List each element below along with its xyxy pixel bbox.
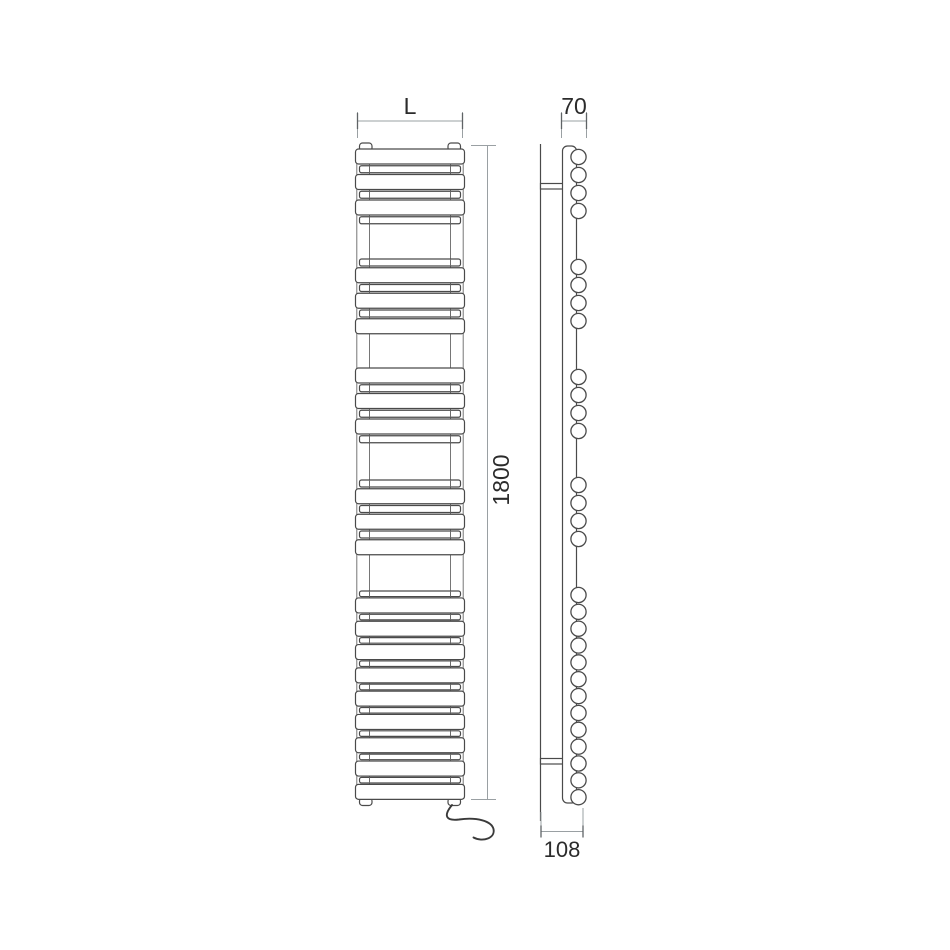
radiator-bar-narrow xyxy=(360,480,461,487)
depth-top-dimension-label: 70 xyxy=(561,93,587,119)
radiator-bar-wide xyxy=(356,149,465,164)
dimension-depth-top: 70 xyxy=(561,93,587,138)
radiator-bar-wide xyxy=(356,268,465,283)
tube-cross-section xyxy=(571,621,586,636)
power-cable xyxy=(447,805,494,840)
tube-cross-section xyxy=(571,587,586,602)
tube-cross-section xyxy=(571,773,586,788)
radiator-bar-narrow xyxy=(360,661,461,667)
radiator-bar-wide xyxy=(356,621,465,636)
tube-cross-section xyxy=(571,259,586,274)
radiator-bar-wide xyxy=(356,540,465,555)
radiator-bar-narrow xyxy=(360,191,461,198)
tube-cross-section xyxy=(571,295,586,310)
radiator-bar-narrow xyxy=(360,506,461,513)
dimension-depth-overall: 108 xyxy=(541,808,583,862)
radiator-bar-narrow xyxy=(360,285,461,292)
tube-cross-section xyxy=(571,531,586,546)
radiator-bar-narrow xyxy=(360,410,461,417)
radiator-bar-narrow xyxy=(360,777,461,783)
radiator-bar-wide xyxy=(356,714,465,729)
tube-cross-section xyxy=(571,739,586,754)
side-view xyxy=(541,144,587,821)
depth-overall-dimension-label: 108 xyxy=(544,837,581,862)
radiator-bar-wide xyxy=(356,598,465,613)
tube-cross-section xyxy=(571,149,586,164)
radiator-bar-wide xyxy=(356,200,465,215)
tube-cross-section xyxy=(571,405,586,420)
radiator-bar-narrow xyxy=(360,385,461,392)
tube-cross-section xyxy=(571,387,586,402)
radiator-bar-narrow xyxy=(360,638,461,644)
radiator-bar-narrow xyxy=(360,754,461,760)
tube-cross-section xyxy=(571,756,586,771)
radiator-bar-narrow xyxy=(360,436,461,443)
tube-cross-section xyxy=(571,203,586,218)
tube-cross-section xyxy=(571,722,586,737)
wall-bracket-bottom xyxy=(541,759,564,765)
tube-cross-section xyxy=(571,277,586,292)
radiator-bar-narrow xyxy=(360,217,461,224)
side-collector-profile xyxy=(563,146,577,803)
tube-cross-section xyxy=(571,495,586,510)
radiator-bar-wide xyxy=(356,738,465,753)
radiator-bar-wide xyxy=(356,419,465,434)
radiator-bar-narrow xyxy=(360,708,461,714)
tube-cross-section xyxy=(571,167,586,182)
height-dimension-label: 1800 xyxy=(488,454,514,505)
front-bars xyxy=(356,149,465,799)
tube-cross-section xyxy=(571,689,586,704)
radiator-bar-wide xyxy=(356,645,465,660)
technical-drawing: L 70 1800 108 xyxy=(0,0,950,950)
radiator-bar-narrow xyxy=(360,684,461,690)
tube-cross-section xyxy=(571,705,586,720)
tube-cross-section xyxy=(571,477,586,492)
radiator-bar-wide xyxy=(356,514,465,529)
tube-cross-section xyxy=(571,313,586,328)
radiator-bar-narrow xyxy=(360,731,461,737)
radiator-bar-narrow xyxy=(360,591,461,597)
radiator-bar-wide xyxy=(356,691,465,706)
radiator-bar-wide xyxy=(356,368,465,383)
tube-cross-section xyxy=(571,790,586,805)
radiator-bar-narrow xyxy=(360,166,461,173)
radiator-bar-wide xyxy=(356,489,465,504)
wall-bracket-top xyxy=(541,184,564,190)
dimension-width: L xyxy=(358,93,463,138)
radiator-bar-wide xyxy=(356,175,465,190)
tube-cross-section xyxy=(571,604,586,619)
radiator-bar-narrow xyxy=(360,614,461,620)
radiator-bar-narrow xyxy=(360,531,461,538)
radiator-bar-wide xyxy=(356,761,465,776)
radiator-bar-wide xyxy=(356,394,465,409)
tube-cross-section xyxy=(571,638,586,653)
radiator-bar-narrow xyxy=(360,259,461,266)
tube-cross-section xyxy=(571,423,586,438)
front-view xyxy=(356,143,494,840)
radiator-bar-narrow xyxy=(360,310,461,317)
tube-cross-section xyxy=(571,369,586,384)
tube-cross-section xyxy=(571,185,586,200)
radiator-bar-wide xyxy=(356,668,465,683)
tube-cross-section xyxy=(571,655,586,670)
tube-cross-section xyxy=(571,672,586,687)
dimension-height: 1800 xyxy=(471,146,514,800)
radiator-bar-wide xyxy=(356,293,465,308)
tube-cross-section xyxy=(571,513,586,528)
width-dimension-label: L xyxy=(404,93,417,119)
radiator-bar-wide xyxy=(356,784,465,799)
radiator-bar-wide xyxy=(356,319,465,334)
